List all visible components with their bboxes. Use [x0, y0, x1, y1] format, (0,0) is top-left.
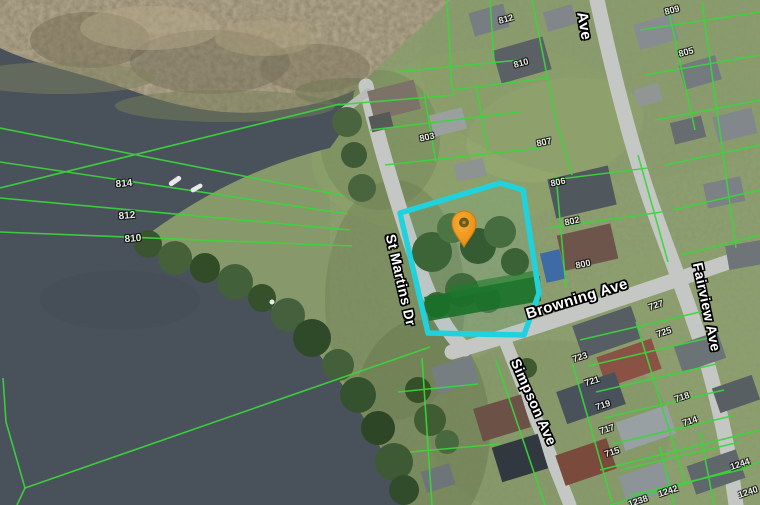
aerial-imagery	[0, 0, 760, 505]
highlighted-parcel-outline[interactable]	[400, 183, 539, 335]
map-canvas[interactable]: St Martins Dr Browning Ave Simpson Ave F…	[0, 0, 760, 505]
